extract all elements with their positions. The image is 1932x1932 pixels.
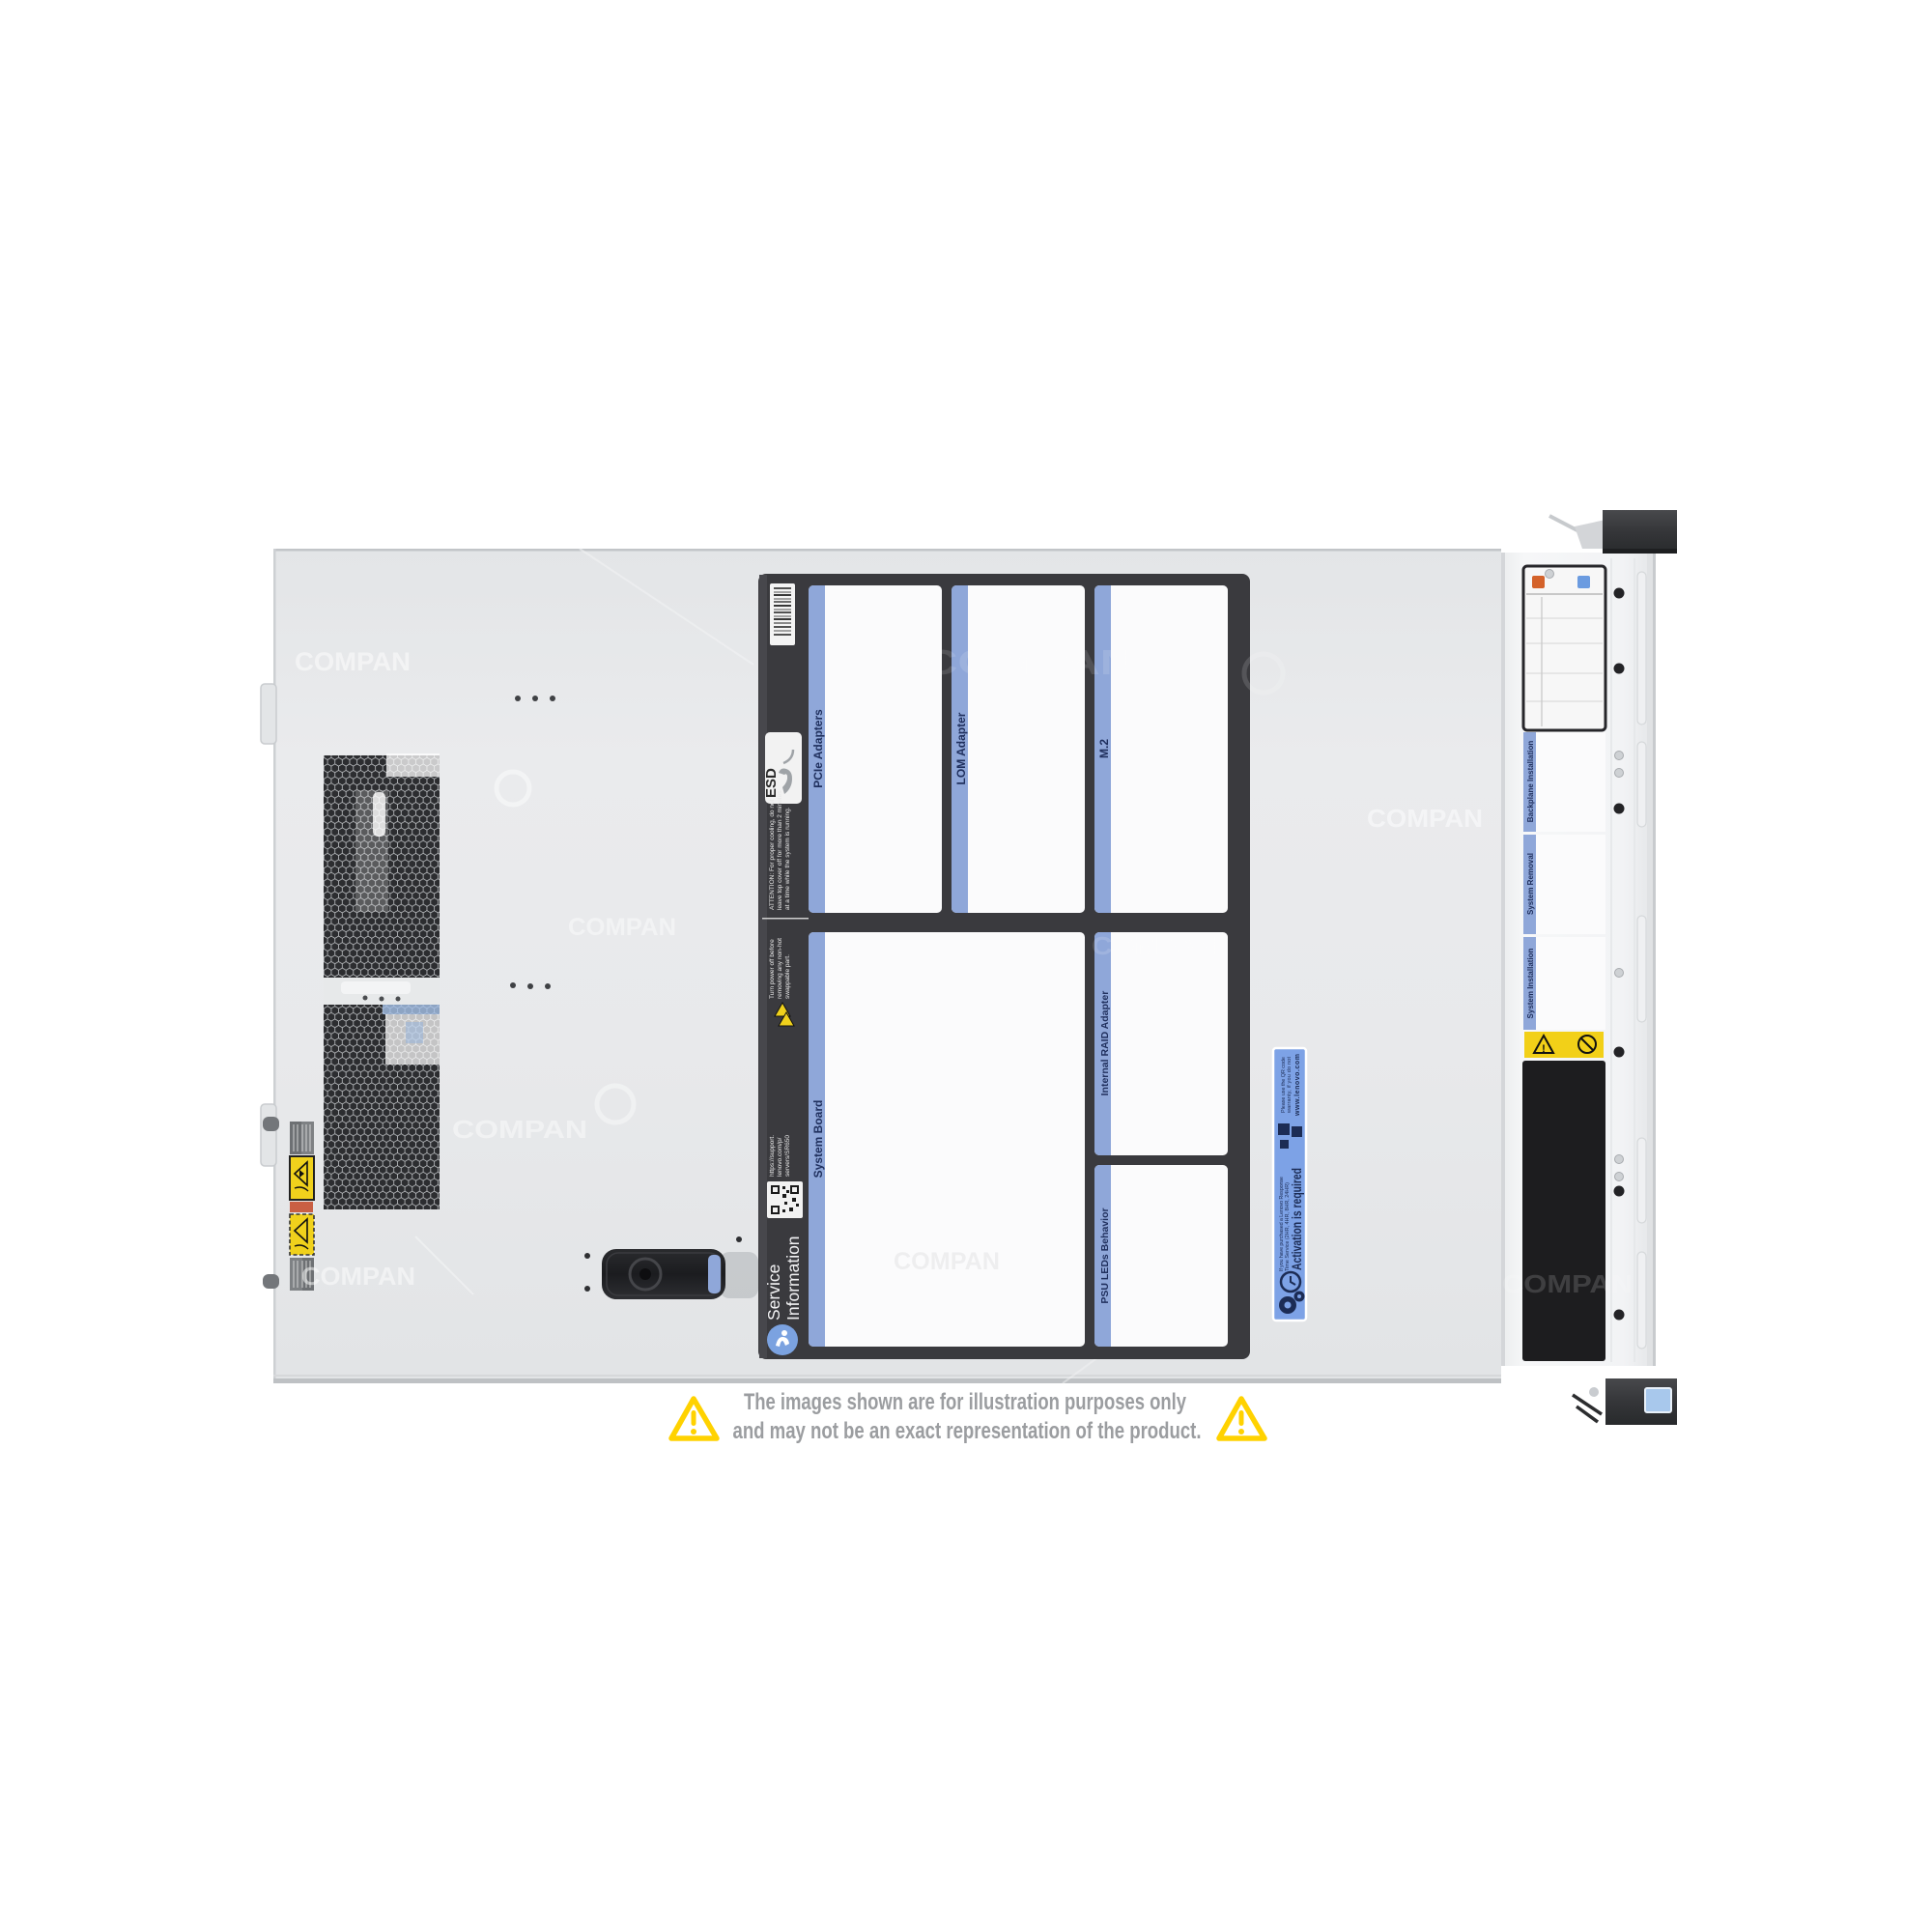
svg-text:The images shown are for illus: The images shown are for illustration pu… (744, 1389, 1187, 1415)
svg-text:https://support.: https://support. (769, 1135, 776, 1177)
svg-text:COMPAN: COMPAN (452, 1115, 587, 1144)
svg-text:COMPAN: COMPAN (1092, 931, 1217, 960)
svg-text:Backplane Installation: Backplane Installation (1526, 741, 1535, 823)
svg-text:Activation is required: Activation is required (1289, 1168, 1304, 1270)
svg-text:www.lenovo.com: www.lenovo.com (1294, 1054, 1301, 1117)
svg-text:swappable part.: swappable part. (784, 954, 791, 999)
svg-text:COMPAN: COMPAN (923, 642, 1135, 682)
svg-text:LOM Adapter: LOM Adapter (954, 712, 968, 784)
svg-text:System Installation: System Installation (1526, 948, 1535, 1018)
svg-text:PSU LEDs Behavior: PSU LEDs Behavior (1099, 1207, 1111, 1303)
svg-text:System Removal: System Removal (1526, 853, 1535, 915)
svg-text:removing any non-hot: removing any non-hot (777, 938, 783, 999)
svg-text:Information: Information (783, 1236, 803, 1321)
svg-text:M.2: M.2 (1097, 739, 1111, 758)
svg-text:Service: Service (764, 1264, 783, 1321)
svg-text:at a time while the system is: at a time while the system is running. (784, 807, 791, 910)
svg-text:COMPAN: COMPAN (568, 914, 676, 941)
svg-text:ATTENTION: For proper cooling: ATTENTION: For proper cooling, do not (769, 799, 776, 910)
svg-text:COMPAN: COMPAN (1502, 1269, 1633, 1298)
svg-text:!: ! (1542, 1043, 1546, 1055)
svg-text:servers/SR650: servers/SR650 (784, 1135, 791, 1177)
svg-text:PCIe Adapters: PCIe Adapters (811, 709, 825, 788)
svg-text:COMPAN: COMPAN (295, 647, 411, 676)
svg-text:and may not be an exact repres: and may not be an exact representation o… (733, 1418, 1202, 1444)
svg-text:Turn power off before: Turn power off before (769, 939, 776, 999)
svg-text:COMPAN: COMPAN (894, 1248, 1000, 1275)
svg-text:System Board: System Board (811, 1100, 825, 1179)
svg-text:leave top cover off for more t: leave top cover off for more than 2 minu… (777, 790, 783, 910)
svg-text:lenovo.com/p/: lenovo.com/p/ (777, 1137, 783, 1177)
svg-text:Internal RAID Adapter: Internal RAID Adapter (1099, 991, 1111, 1096)
svg-text:warranty, if you do not: warranty, if you do not (1287, 1057, 1293, 1114)
svg-text:COMPAN: COMPAN (1367, 804, 1483, 833)
svg-text:COMPAN: COMPAN (301, 1262, 415, 1291)
